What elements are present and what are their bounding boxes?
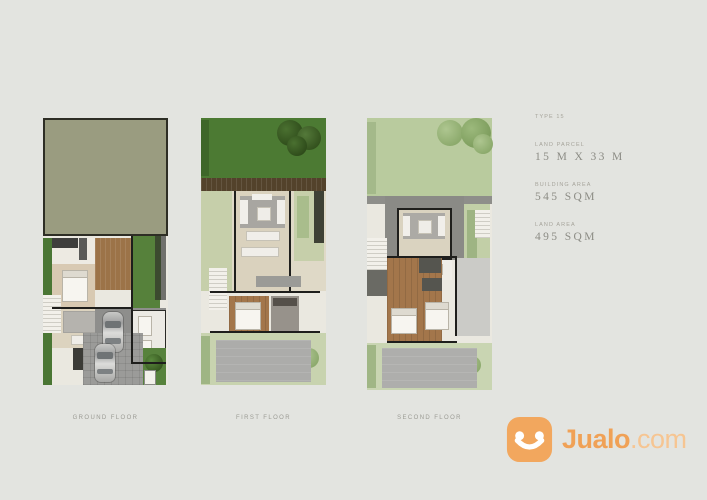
bed <box>391 308 417 334</box>
foyer-wood-floor <box>95 238 132 290</box>
building-area-value: 545 SQM <box>535 191 597 203</box>
land-parcel-value: 15 M X 33 M <box>535 151 625 163</box>
bed <box>62 270 88 302</box>
floorplan-ground <box>43 118 168 385</box>
sofa <box>403 216 410 236</box>
brand-logo: Jualo.com <box>506 413 696 465</box>
sofa <box>240 200 248 224</box>
wall <box>131 362 166 364</box>
floorplan-second <box>367 118 492 390</box>
staircase-outdoor <box>475 210 490 238</box>
sofa <box>277 200 285 224</box>
brand-wordmark: Jualo.com <box>562 424 687 455</box>
bed-headboard <box>236 303 260 310</box>
tree <box>437 120 463 146</box>
kitchen-counter <box>256 276 301 287</box>
terrace-right <box>452 196 464 260</box>
bath-vanity <box>273 298 297 306</box>
wall <box>455 256 457 336</box>
floor-label-second: SECOND FLOOR <box>367 415 492 421</box>
bed <box>425 302 449 330</box>
sofa <box>252 194 272 200</box>
jualo-smiley-icon <box>506 416 553 463</box>
coffee-table <box>257 207 271 221</box>
floor-label-ground: GROUND FLOOR <box>43 415 168 421</box>
hedge-row <box>201 120 209 176</box>
shrub-row <box>201 336 210 384</box>
lower-roof-gray <box>455 258 490 336</box>
sofa <box>438 216 445 236</box>
bathroom <box>422 278 442 291</box>
bed-headboard <box>63 271 87 278</box>
kitchen-appliance <box>79 238 87 260</box>
bathroom <box>419 258 441 273</box>
land-parcel-label: LAND PARCEL <box>535 142 585 148</box>
hedge-strip <box>314 191 324 243</box>
wall <box>210 291 320 293</box>
floorplan-first <box>201 118 326 385</box>
bed-headboard <box>392 309 416 316</box>
main-roof <box>382 348 477 388</box>
unit-type-label: TYPE 15 <box>535 114 565 120</box>
brand-suffix: .com <box>630 424 687 454</box>
tree <box>287 136 307 156</box>
brand-name: Jualo <box>562 424 630 454</box>
boundary-wall <box>161 236 166 300</box>
kitchen-island <box>241 247 279 257</box>
coffee-table <box>418 220 432 234</box>
bathroom <box>367 270 387 296</box>
wall <box>52 307 132 309</box>
wood-deck <box>201 178 326 191</box>
side-lawn-strip-lower <box>43 333 52 385</box>
building-area-label: BUILDING AREA <box>535 182 591 188</box>
wall <box>387 256 457 258</box>
dining-table <box>246 231 280 241</box>
shrub-bed <box>297 196 309 238</box>
bed-headboard <box>426 303 448 310</box>
floorplan-brochure: GROUND FLOOR FIRST FLOOR SECOND FLOOR TY… <box>0 0 707 500</box>
car <box>95 344 115 382</box>
tree <box>473 134 493 154</box>
staircase <box>209 268 227 310</box>
shrub-row <box>367 345 376 388</box>
roof-olive-block <box>43 118 168 236</box>
kitchen-counter <box>52 238 78 248</box>
shrub-row <box>367 122 376 194</box>
land-area-value: 495 SQM <box>535 231 597 243</box>
land-area-label: LAND AREA <box>535 222 576 228</box>
side-lawn-strip <box>43 238 52 295</box>
gate-box <box>144 370 156 385</box>
staircase <box>43 295 61 333</box>
canopy-roof <box>216 340 311 382</box>
wall <box>131 236 133 364</box>
floor-label-first: FIRST FLOOR <box>201 415 326 421</box>
bed <box>235 302 261 330</box>
